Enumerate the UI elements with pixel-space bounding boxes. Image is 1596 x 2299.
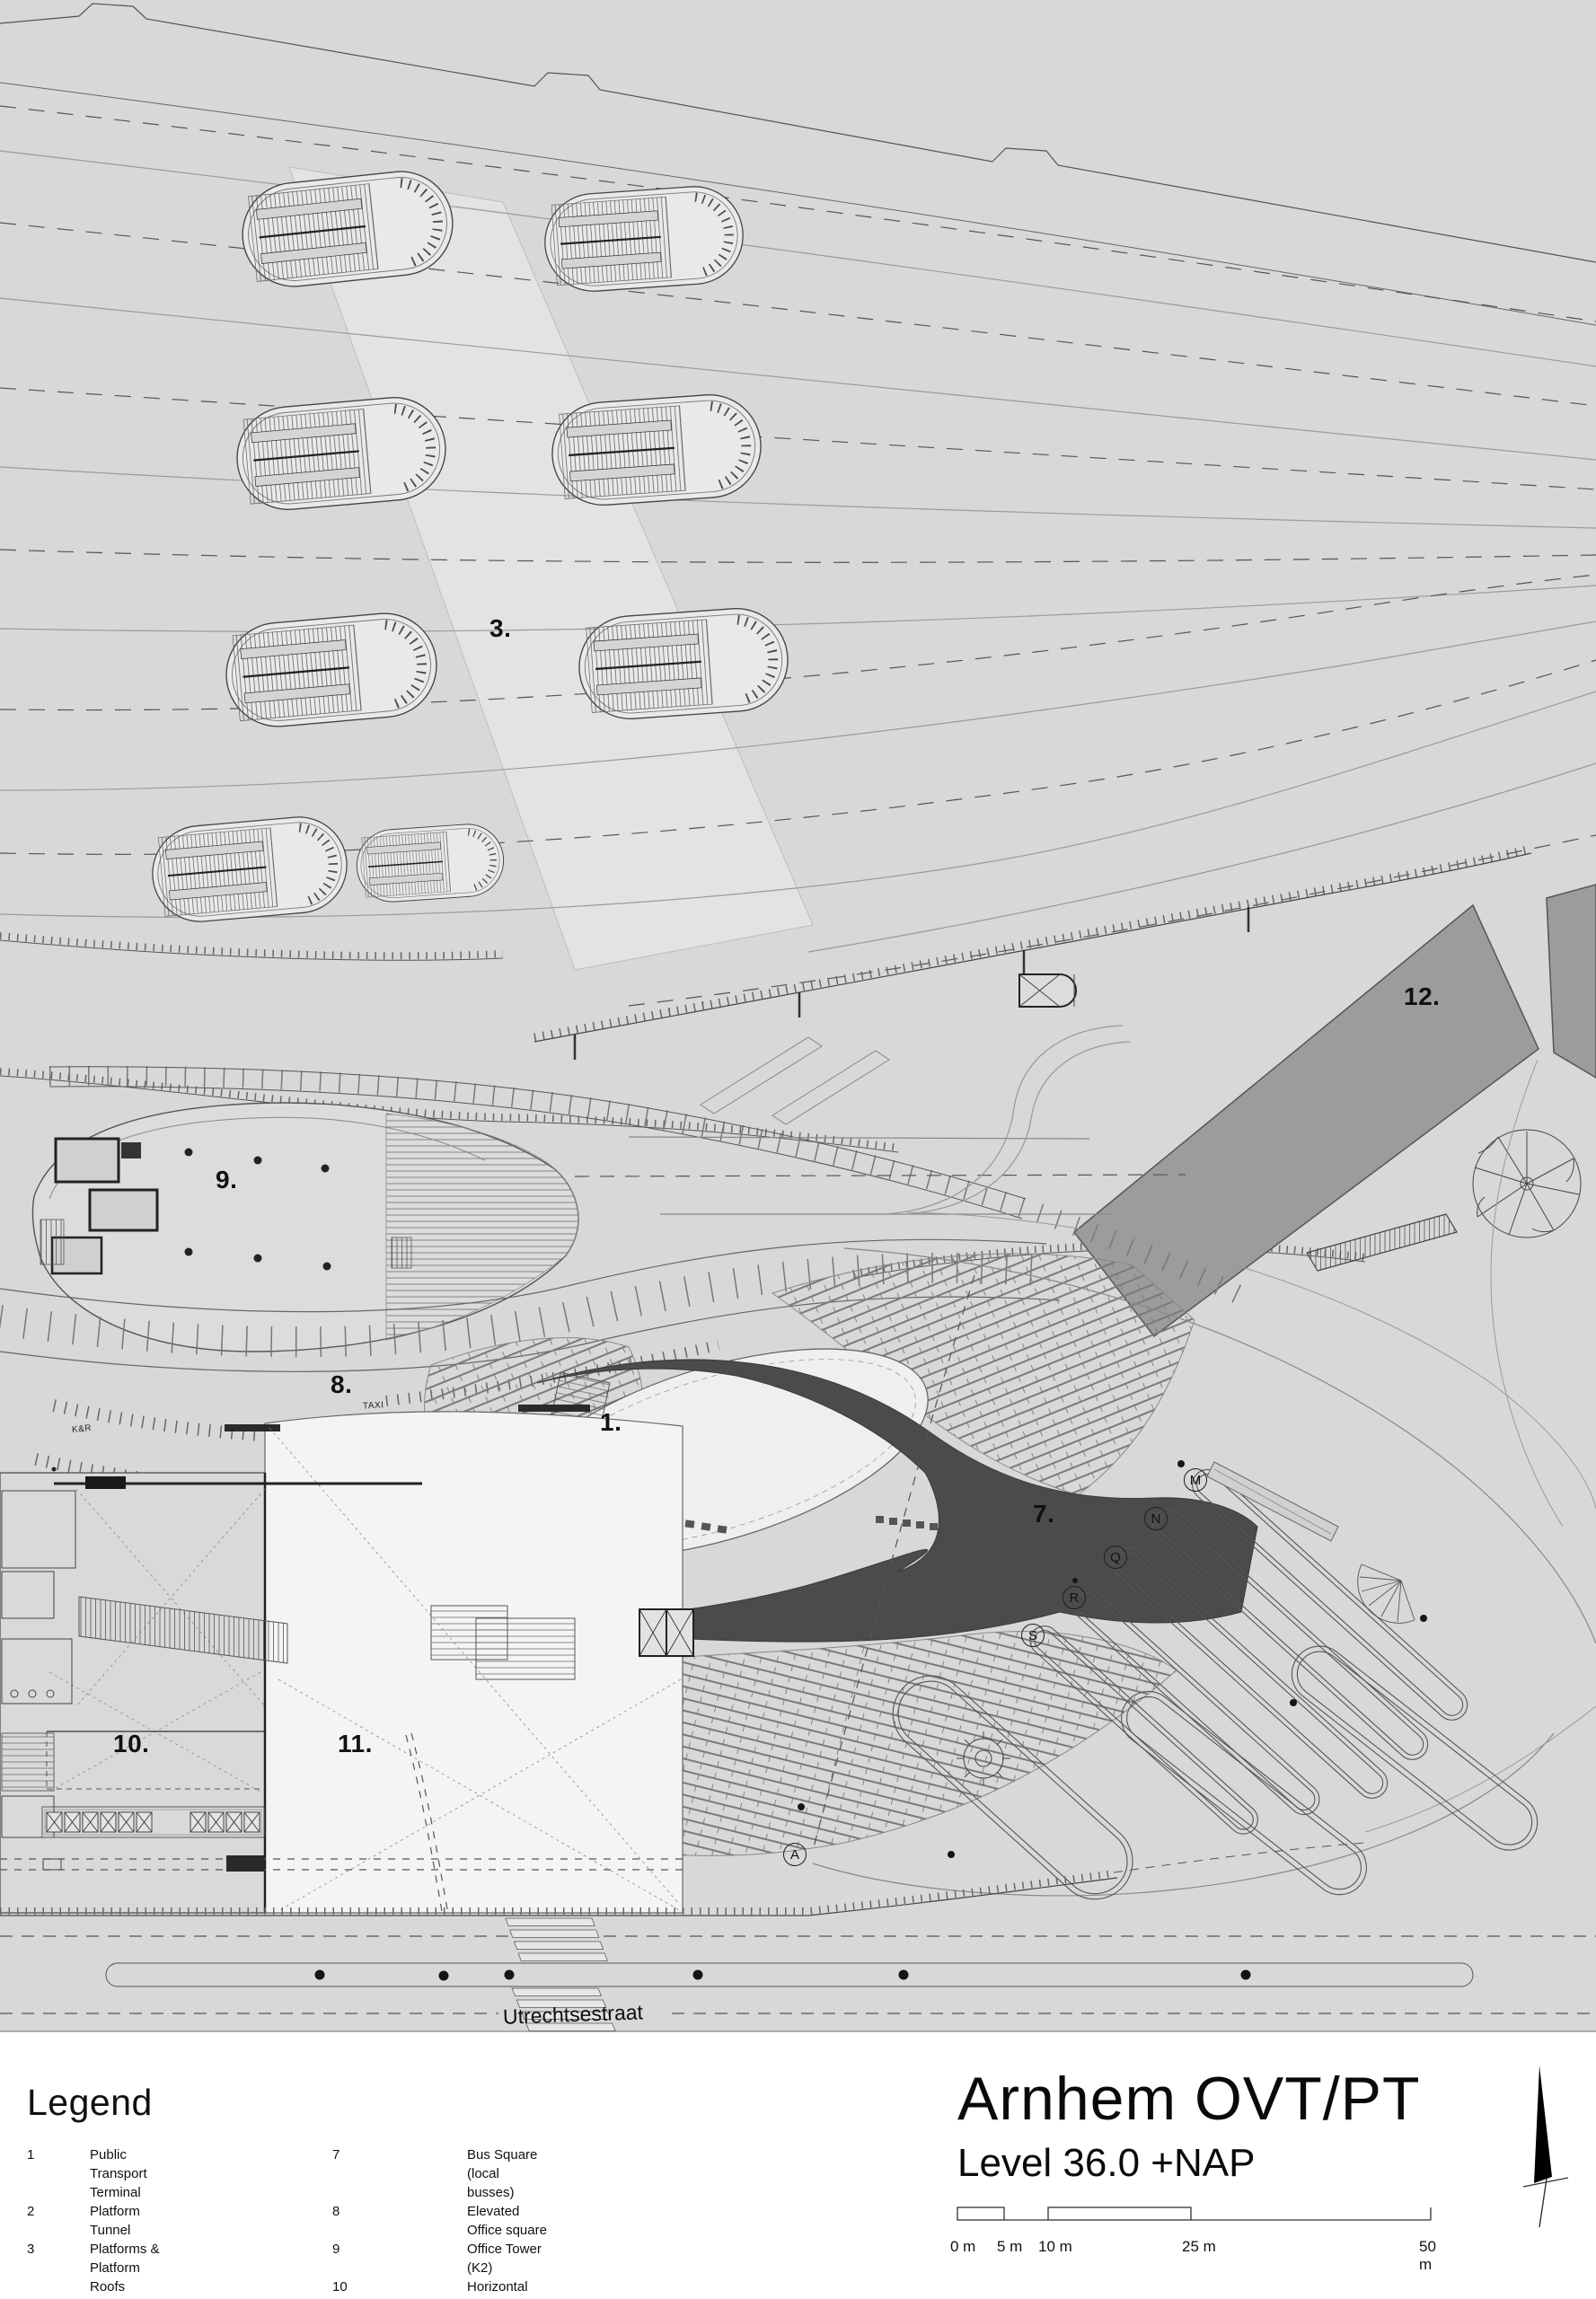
offices-k4-k5-buildings: [0, 1405, 693, 1913]
legend-item: 9Office Tower (K2): [332, 2240, 549, 2277]
street-name: Utrechtsestraat: [503, 2000, 644, 2029]
legend-item: 2Platform Tunnel: [27, 2202, 169, 2240]
legend-column-1: 1Public Transport Terminal 2Platform Tun…: [27, 2145, 169, 2299]
site-plan-drawing: [0, 0, 1596, 2299]
north-arrow-icon: [1520, 2060, 1574, 2231]
label-office-tower-k3: 12.: [1404, 984, 1440, 1009]
scale-5m: 5 m: [997, 2238, 1022, 2256]
label-elevated-square: 8.: [331, 1372, 352, 1397]
sheet-subtitle: Level 36.0 +NAP: [957, 2142, 1421, 2185]
title-block: Arnhem OVT/PT Level 36.0 +NAP: [957, 2066, 1421, 2185]
bus-stop-n: N: [1144, 1507, 1168, 1530]
bus-stop-a: A: [783, 1843, 807, 1866]
label-taxi: TAXI: [363, 1400, 384, 1411]
bus-stop-r: R: [1063, 1586, 1086, 1609]
bus-stop-s: S: [1021, 1624, 1045, 1647]
legend-item: 7Bus Square (local busses): [332, 2145, 549, 2202]
legend-column-2: 7Bus Square (local busses) 8Elevated Off…: [332, 2145, 549, 2299]
label-offices-k4: 10.: [113, 1731, 149, 1757]
scale-25m: 25 m: [1182, 2238, 1216, 2256]
label-platforms: 3.: [489, 616, 511, 641]
scale-0m: 0 m: [950, 2238, 975, 2256]
scale-bar-graphic: [948, 2198, 1451, 2231]
label-kiss-and-ride: K&R: [71, 1423, 92, 1435]
drawing-sheet: 3. 12. 9. 8. 1. 7. 10. 11. M N Q R S A K…: [0, 0, 1596, 2299]
label-offices-k5: 11.: [338, 1731, 373, 1757]
legend-item: 10Horizontal Offices (K4): [332, 2277, 549, 2299]
scale-50m: 50 m: [1419, 2238, 1451, 2274]
legend-heading: Legend: [27, 2082, 153, 2124]
sheet-title: Arnhem OVT/PT: [957, 2066, 1421, 2133]
scale-10m: 10 m: [1038, 2238, 1072, 2256]
offices-k4-floor: [0, 1473, 265, 1913]
bus-stop-m: M: [1184, 1468, 1207, 1492]
scale-bar: 0 m 5 m 10 m 25 m 50 m: [948, 2198, 1451, 2235]
legend-item: 8Elevated Office square: [332, 2202, 549, 2240]
label-office-tower-k2: 9.: [216, 1167, 237, 1193]
label-bus-square: 7.: [1033, 1502, 1054, 1527]
label-terminal: 1.: [600, 1410, 622, 1435]
legend: Legend 1Public Transport Terminal 2Platf…: [27, 2082, 153, 2145]
offices-k5-floor: [265, 1412, 683, 1913]
bus-stop-q: Q: [1104, 1546, 1127, 1569]
legend-item: 1Public Transport Terminal: [27, 2145, 169, 2202]
legend-item: 3Platforms & Platform Roofs: [27, 2240, 169, 2296]
